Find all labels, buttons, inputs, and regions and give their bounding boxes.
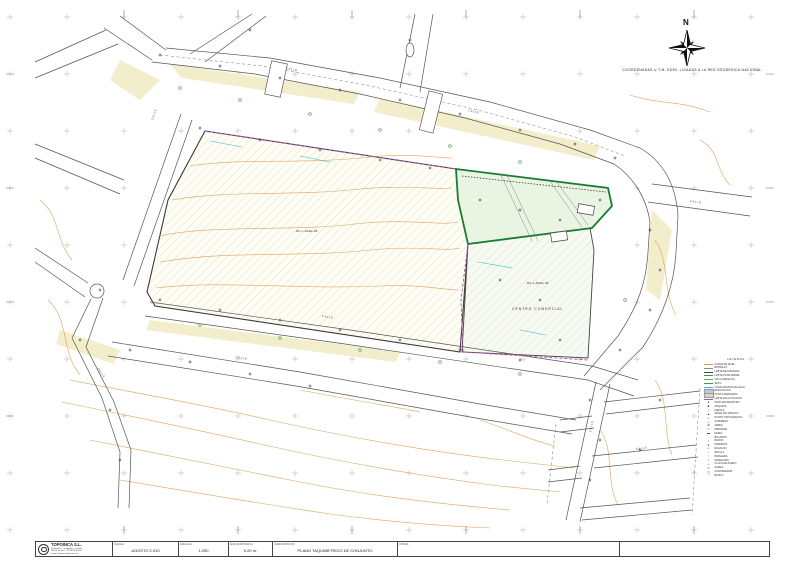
scale-field-label: ESCALA <box>181 543 192 546</box>
legend-swatch-icon <box>704 393 713 398</box>
parcel-label: MC-1 AREA 2B <box>527 281 549 285</box>
company-info-line: e-mail: topoinca@topoinca.es <box>51 553 83 556</box>
legend-swatch-icon <box>704 379 713 380</box>
company-logo-icon <box>38 544 49 555</box>
commercial-center-label: CENTRO COMERCIAL <box>512 307 563 311</box>
legend-item: ○BANCO <box>704 474 768 478</box>
signature-cell: FIRMA <box>398 542 620 556</box>
scale-cell: ESCALA 1:250 <box>179 542 229 556</box>
signature-field-label: FIRMA <box>400 543 409 546</box>
north-label: N <box>683 18 689 27</box>
legend-swatch-icon <box>704 372 713 373</box>
legend-item-label: BANCO <box>715 474 724 478</box>
parcel-label: MC-1 AREA 2B <box>296 229 318 233</box>
scale-value: 1:250 <box>179 548 228 553</box>
legend-swatch-icon: ○ <box>704 474 713 477</box>
date-field-label: FECHA <box>115 543 125 546</box>
equidistance-cell: EQUIDISTANCIA 0,20 m. <box>229 542 273 556</box>
coordinates-note: COORDENADAS U.T.M. ED50, LIGADAS A LA RE… <box>617 68 767 72</box>
date-value: AGOSTO 2.010 <box>113 548 178 553</box>
date-cell: FECHA AGOSTO 2.010 <box>113 542 179 556</box>
company-cell: TOPOINCA S.L. Topografia - Cartografia -… <box>36 542 113 556</box>
plan-drawing <box>0 0 800 566</box>
equidistance-value: 0,20 m. <box>229 548 272 553</box>
legend-swatch-icon <box>704 364 713 365</box>
survey-plan-sheet: N COORDENADAS U.T.M. ED50, LIGADAS A LA … <box>0 0 800 566</box>
legend-swatch-icon <box>704 399 713 400</box>
legend: LEYENDA CURVA DE NIVELBORDILLOLIMITE DE … <box>704 357 768 478</box>
legend-swatch-icon <box>704 368 713 369</box>
commercial-parcel <box>462 228 594 358</box>
blank-cell <box>620 542 769 556</box>
legend-title: LEYENDA <box>704 357 768 361</box>
equidistance-field-label: EQUIDISTANCIA <box>231 543 254 546</box>
description-value: PLANO TAQUIMETRICO DE CONJUNTO <box>273 548 397 553</box>
legend-swatch-icon <box>704 387 713 388</box>
traffic-island <box>406 43 414 57</box>
title-block: TOPOINCA S.L. Topografia - Cartografia -… <box>35 541 770 557</box>
description-field-label: DESCRIPCION <box>275 543 295 546</box>
description-cell: DESCRIPCION PLANO TAQUIMETRICO DE CONJUN… <box>273 542 398 556</box>
legend-swatch-icon <box>704 383 713 384</box>
legend-swatch-icon <box>704 375 713 376</box>
legend-rows: CURVA DE NIVELBORDILLOLIMITE DE MANZANAL… <box>704 363 768 478</box>
